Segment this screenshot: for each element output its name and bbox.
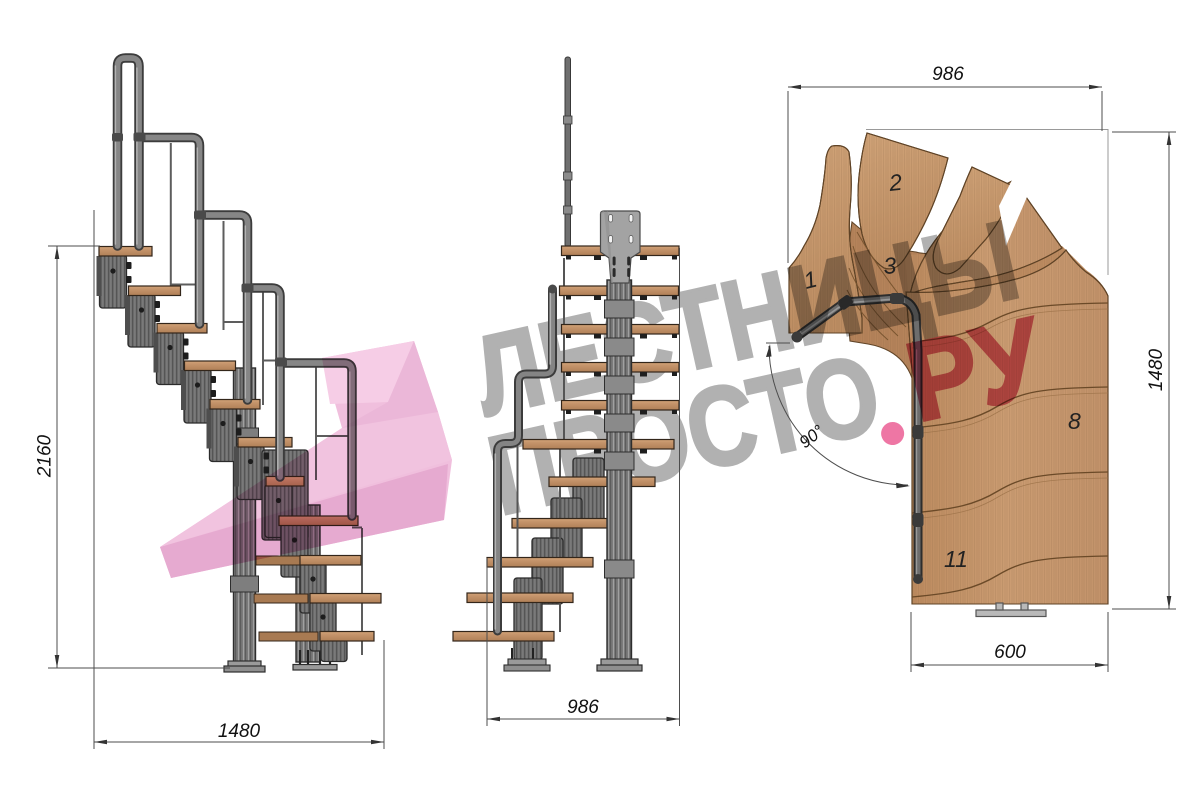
svg-text:2160: 2160 [35, 434, 56, 478]
svg-text:8: 8 [1068, 408, 1081, 434]
svg-text:600: 600 [994, 642, 1026, 663]
svg-text:11: 11 [944, 546, 968, 572]
svg-text:1480: 1480 [218, 721, 261, 742]
svg-text:986: 986 [932, 64, 964, 85]
svg-text:2: 2 [887, 169, 904, 196]
svg-text:986: 986 [567, 697, 599, 718]
svg-text:1480: 1480 [1146, 348, 1167, 391]
